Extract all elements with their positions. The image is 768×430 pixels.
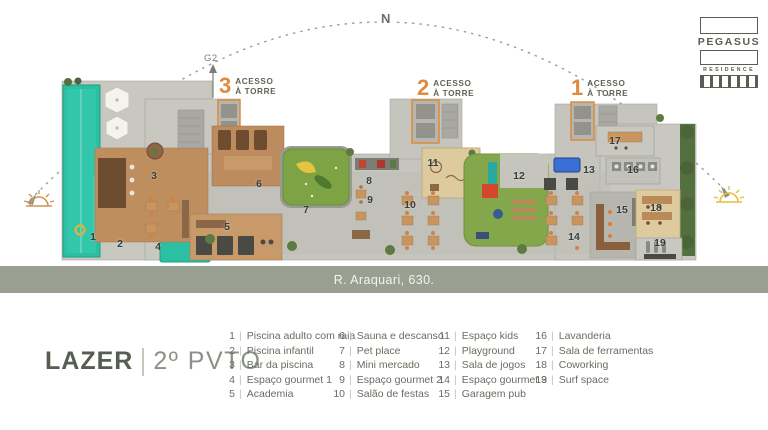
legend-item-number: 14 [435, 373, 450, 388]
north-label: N [377, 11, 394, 26]
legend-item: 14|Espaço gourmet 3 [435, 373, 547, 388]
legend-item-number: 15 [435, 387, 450, 402]
legend-separator: | [551, 344, 554, 359]
legend-item-number: 17 [532, 344, 547, 359]
coworking [636, 190, 680, 240]
legend-item-number: 5 [220, 387, 235, 402]
sauna-area [212, 126, 284, 186]
legend-item-label: Espaço gourmet 1 [247, 373, 332, 388]
legend-item-number: 7 [330, 344, 345, 359]
legend-separator: | [349, 329, 352, 344]
legend-column: 6|Sauna e descanso7|Pet place8|Mini merc… [330, 329, 444, 402]
legend-item: 16|Lavanderia [532, 329, 653, 344]
legend-separator: | [349, 373, 352, 388]
legend-separator: | [454, 344, 457, 359]
legend-item: 10|Salão de festas [330, 387, 444, 402]
legend-separator: | [239, 373, 242, 388]
tool-room [596, 126, 654, 156]
brand-name: PEGASUS [698, 36, 761, 48]
legend-item-label: Surf space [559, 373, 609, 388]
title-main: LAZER [45, 347, 133, 376]
plan-area-number: 2 [117, 238, 123, 250]
legend-item-number: 9 [330, 373, 345, 388]
legend-item: 7|Pet place [330, 344, 444, 359]
logo-barcode [700, 75, 758, 88]
legend-separator: | [454, 373, 457, 388]
legend-item-label: Piscina infantil [247, 344, 314, 359]
hedge [680, 124, 695, 256]
legend-column: 11|Espaço kids12|Playground13|Sala de jo… [435, 329, 547, 402]
legend-item-label: Lavanderia [559, 329, 611, 344]
logo-frame-top [700, 17, 758, 34]
mini-market [355, 158, 399, 170]
legend-separator: | [551, 373, 554, 388]
plan-area-number: 3 [151, 170, 157, 182]
plan-area-number: 1 [90, 231, 96, 243]
legend-item-label: Salão de festas [357, 387, 429, 402]
plan-area-number: 10 [404, 199, 416, 211]
plan-area-number: 9 [367, 194, 373, 206]
legend-separator: | [239, 329, 242, 344]
page: N PEGASUS RESIDENCE G2 [0, 0, 768, 430]
legend-item-label: Sala de ferramentas [559, 344, 654, 359]
plan-area-number: 7 [303, 204, 309, 216]
sunset-icon [22, 186, 56, 212]
legend-item-label: Coworking [559, 358, 609, 373]
legend-item-number: 16 [532, 329, 547, 344]
legend-item: 19|Surf space [532, 373, 653, 388]
legend-item-label: Sala de jogos [462, 358, 526, 373]
brand-logo: PEGASUS RESIDENCE [696, 17, 762, 88]
plan-area-number: 5 [224, 221, 230, 233]
legend-item-label: Espaço kids [462, 329, 519, 344]
pet-place-turf [280, 146, 352, 208]
street-label: R. Araquari, 630. [334, 273, 435, 287]
legend-separator: | [239, 387, 242, 402]
legend-separator: | [454, 358, 457, 373]
legend-item-number: 2 [220, 344, 235, 359]
legend-item-number: 13 [435, 358, 450, 373]
legend-separator: | [239, 344, 242, 359]
plan-area-number: 15 [616, 204, 628, 216]
legend-item-label: Playground [462, 344, 515, 359]
legend-item-number: 10 [330, 387, 345, 402]
plan-area-number: 11 [427, 157, 438, 169]
legend-item: 15|Garagem pub [435, 387, 547, 402]
logo-frame-mid [700, 50, 758, 65]
legend-item-number: 12 [435, 344, 450, 359]
legend-separator: | [551, 329, 554, 344]
legend-item-number: 18 [532, 358, 547, 373]
brand-type: RESIDENCE [703, 67, 755, 73]
legend-separator: | [239, 358, 242, 373]
plan-area-number: 6 [256, 178, 262, 190]
legend-item-label: Pet place [357, 344, 401, 359]
legend-item: 18|Coworking [532, 358, 653, 373]
sunrise-icon [712, 182, 746, 208]
legend-item-label: Mini mercado [357, 358, 420, 373]
legend-column: 16|Lavanderia17|Sala de ferramentas18|Co… [532, 329, 653, 387]
floor-plan: 1 2 3 4 5 6 7 8 9 10 11 12 13 14 15 16 1… [60, 72, 700, 267]
plan-area-number: 8 [366, 175, 372, 187]
legend-item: 6|Sauna e descanso [330, 329, 444, 344]
legend-item-label: Garagem pub [462, 387, 526, 402]
legend-item-number: 3 [220, 358, 235, 373]
legend-item-number: 1 [220, 329, 235, 344]
legend-separator: | [349, 358, 352, 373]
plan-area-number: 12 [513, 170, 525, 182]
legend-separator: | [349, 387, 352, 402]
plan-area-number: 19 [654, 237, 666, 249]
plan-area-number: 17 [609, 135, 621, 147]
legend-item: 12|Playground [435, 344, 547, 359]
legend-separator: | [454, 329, 457, 344]
legend-item: 13|Sala de jogos [435, 358, 547, 373]
playground-lawn [464, 154, 548, 246]
legend-item-number: 6 [330, 329, 345, 344]
legend-item-label: Sauna e descanso [357, 329, 444, 344]
plan-area-number: 13 [583, 164, 595, 176]
legend-separator: | [349, 344, 352, 359]
legend-item-label: Espaço gourmet 2 [357, 373, 442, 388]
legend-item: 8|Mini mercado [330, 358, 444, 373]
legend-item-number: 4 [220, 373, 235, 388]
g2-label: G2 [204, 53, 218, 64]
plan-area-number: 18 [650, 202, 662, 214]
plan-area-number: 14 [568, 231, 580, 243]
legend-item: 17|Sala de ferramentas [532, 344, 653, 359]
plan-area-number: 4 [155, 241, 161, 253]
legend-item: 11|Espaço kids [435, 329, 547, 344]
legend-item-label: Bar da piscina [247, 358, 314, 373]
legend-item-label: Academia [247, 387, 294, 402]
legend-item-number: 11 [435, 329, 450, 344]
legend-separator: | [454, 387, 457, 402]
gym-area [190, 214, 282, 260]
legend-item-number: 19 [532, 373, 547, 388]
legend-item-number: 8 [330, 358, 345, 373]
legend-separator: | [551, 358, 554, 373]
plan-area-number: 16 [627, 164, 639, 176]
title-divider [142, 348, 144, 376]
street-band: R. Araquari, 630. [0, 266, 768, 293]
legend-item: 9|Espaço gourmet 2 [330, 373, 444, 388]
